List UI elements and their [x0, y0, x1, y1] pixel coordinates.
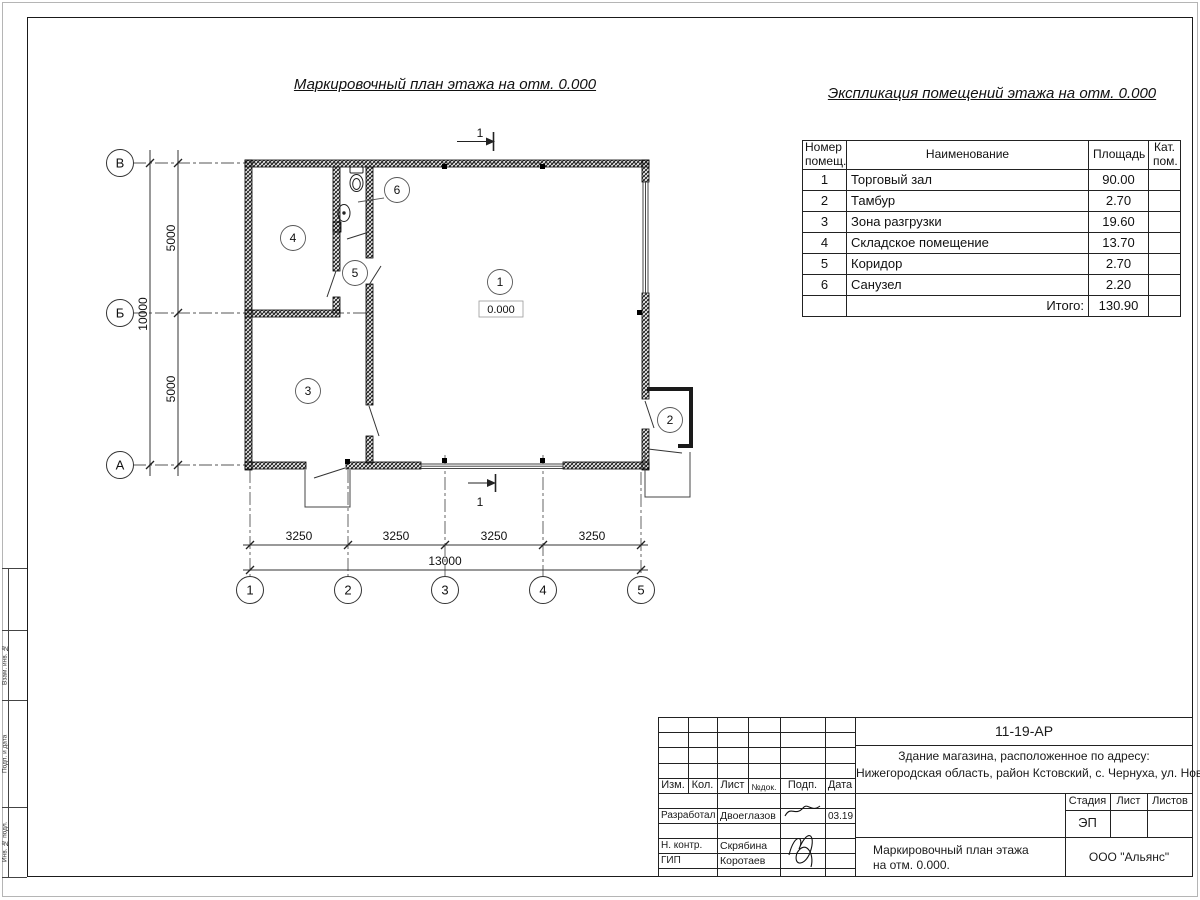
- walls: [245, 160, 649, 470]
- total-row: Итого: 130.90: [803, 295, 1181, 316]
- room-area-cell: 13.70: [1089, 232, 1149, 253]
- table-row: 4 Складское помещение 13.70: [803, 232, 1181, 253]
- dim-bottom-2: 3250: [383, 529, 410, 543]
- col-podp: Подп.: [780, 779, 825, 791]
- total-label: Итого:: [847, 295, 1089, 316]
- room-label-6: 6: [394, 183, 401, 197]
- gip-name: Коротаев: [720, 855, 765, 867]
- stamp-label-vzam: Взам. инв. №: [1, 632, 9, 698]
- porches: [305, 452, 690, 507]
- ncontr-name: Скрябина: [720, 840, 767, 852]
- col-kol: Кол.: [688, 779, 717, 791]
- dim-left-total: 10000: [136, 297, 150, 331]
- section-mark-top: 1: [457, 126, 495, 151]
- sheet-label: Лист: [1110, 795, 1147, 807]
- floor-plan: 10000 5000 5000 3250 3250 3250 3250 1300…: [0, 0, 760, 640]
- axis-label-4: 4: [539, 583, 546, 598]
- col-header-name: Наименование: [847, 141, 1089, 170]
- room-number-cell: 1: [803, 169, 847, 190]
- table-row: 6 Санузел 2.20: [803, 274, 1181, 295]
- total-empty-cell: [803, 295, 847, 316]
- doc-number: 11-19-АР: [855, 723, 1193, 739]
- dim-bottom-4: 3250: [579, 529, 606, 543]
- axis-label-a: А: [116, 458, 125, 473]
- company-name: ООО "Альянс": [1065, 850, 1193, 864]
- developer-date: 03.19: [828, 811, 853, 822]
- object-address-line1: Здание магазина, расположенное по адресу…: [855, 749, 1193, 763]
- toilet-tank-icon: [350, 167, 363, 173]
- sheets-label: Листов: [1147, 795, 1193, 807]
- col-header-number: Номер помещ.: [803, 141, 847, 170]
- room-label-1: 1: [497, 275, 504, 289]
- table-row: 5 Коридор 2.70: [803, 253, 1181, 274]
- section-mark-bottom: 1: [468, 474, 496, 509]
- col-ndoc: №док.: [748, 782, 780, 792]
- room-cat-cell: [1149, 169, 1181, 190]
- room-number-cell: 5: [803, 253, 847, 274]
- room-name-cell: Тамбур: [847, 190, 1089, 211]
- total-area: 130.90: [1089, 295, 1149, 316]
- toilet-bowl-icon: [350, 175, 363, 192]
- dim-bottom-total: 13000: [428, 554, 462, 568]
- dim-bottom-1: 3250: [286, 529, 313, 543]
- col-header-category: Кат. пом.: [1149, 141, 1181, 170]
- room-area-cell: 90.00: [1089, 169, 1149, 190]
- axis-label-b: Б: [116, 306, 125, 321]
- room-area-cell: 19.60: [1089, 211, 1149, 232]
- developer-name: Двоеглазов: [720, 810, 776, 822]
- room-area-cell: 2.70: [1089, 253, 1149, 274]
- col-data: Дата: [825, 779, 855, 791]
- room-name-cell: Коридор: [847, 253, 1089, 274]
- room-name-cell: Санузел: [847, 274, 1089, 295]
- signature-ncontr-gip: [789, 836, 812, 867]
- stamp-label-podp: Подп. и дата: [1, 702, 9, 805]
- room-label-2: 2: [667, 413, 674, 427]
- room-number-cell: 6: [803, 274, 847, 295]
- room-label-4: 4: [290, 231, 297, 245]
- elevation-value: 0.000: [487, 304, 515, 316]
- room-cat-cell: [1149, 232, 1181, 253]
- explication-table: Номер помещ. Наименование Площадь Кат. п…: [802, 140, 1181, 317]
- explication-title: Экспликация помещений этажа на отм. 0.00…: [812, 85, 1172, 102]
- section-label-top: 1: [477, 126, 484, 140]
- stage-label: Стадия: [1065, 795, 1110, 807]
- col-list: Лист: [717, 779, 748, 791]
- axis-lines: [133, 163, 649, 576]
- role-gip: ГИП: [661, 855, 681, 866]
- axis-label-2: 2: [344, 583, 351, 598]
- table-row: 1 Торговый зал 90.00: [803, 169, 1181, 190]
- table-row: 3 Зона разгрузки 19.60: [803, 211, 1181, 232]
- room-cat-cell: [1149, 274, 1181, 295]
- axis-label-5: 5: [637, 583, 644, 598]
- room-number-cell: 4: [803, 232, 847, 253]
- col-izm: Изм.: [658, 779, 688, 791]
- room-cat-cell: [1149, 190, 1181, 211]
- room-number-cell: 2: [803, 190, 847, 211]
- signature-developer: [785, 806, 820, 816]
- windows: [421, 182, 648, 469]
- room-area-cell: 2.70: [1089, 190, 1149, 211]
- col-header-area: Площадь: [1089, 141, 1149, 170]
- room-cat-cell: [1149, 211, 1181, 232]
- room-cat-cell: [1149, 253, 1181, 274]
- stage-value: ЭП: [1065, 815, 1110, 830]
- object-address-line2: Нижегородская область, район Кстовский, …: [856, 766, 1200, 780]
- room-number-cell: 3: [803, 211, 847, 232]
- role-ncontr: Н. контр.: [661, 840, 702, 851]
- drawing-name-line1: Маркировочный план этажа: [873, 843, 1029, 857]
- room-name-cell: Зона разгрузки: [847, 211, 1089, 232]
- room-label-5: 5: [352, 266, 359, 280]
- bottom-dimensions: 3250 3250 3250 3250 13000: [243, 529, 648, 574]
- room-name-cell: Торговый зал: [847, 169, 1089, 190]
- axis-label-1: 1: [246, 583, 253, 598]
- total-cat-cell: [1149, 295, 1181, 316]
- room-label-3: 3: [305, 384, 312, 398]
- room-name-cell: Складское помещение: [847, 232, 1089, 253]
- signatures: [781, 797, 824, 875]
- elevation-mark: 0.000: [479, 301, 523, 317]
- room-area-cell: 2.20: [1089, 274, 1149, 295]
- role-developer: Разработал: [661, 810, 715, 821]
- dim-bottom-3: 3250: [481, 529, 508, 543]
- wc-fixtures: [338, 167, 363, 222]
- table-row: 2 Тамбур 2.70: [803, 190, 1181, 211]
- drawing-name-line2: на отм. 0.000.: [873, 858, 950, 872]
- dim-left-upper: 5000: [164, 224, 178, 251]
- axis-label-3: 3: [441, 583, 448, 598]
- stamp-label-inv: Инв. № подл.: [1, 809, 9, 875]
- dim-left-lower: 5000: [164, 375, 178, 402]
- section-label-bottom: 1: [477, 495, 484, 509]
- axis-label-v: В: [116, 156, 125, 171]
- drawing-sheet: { "titles": { "plan": "Маркировочный пла…: [0, 0, 1200, 900]
